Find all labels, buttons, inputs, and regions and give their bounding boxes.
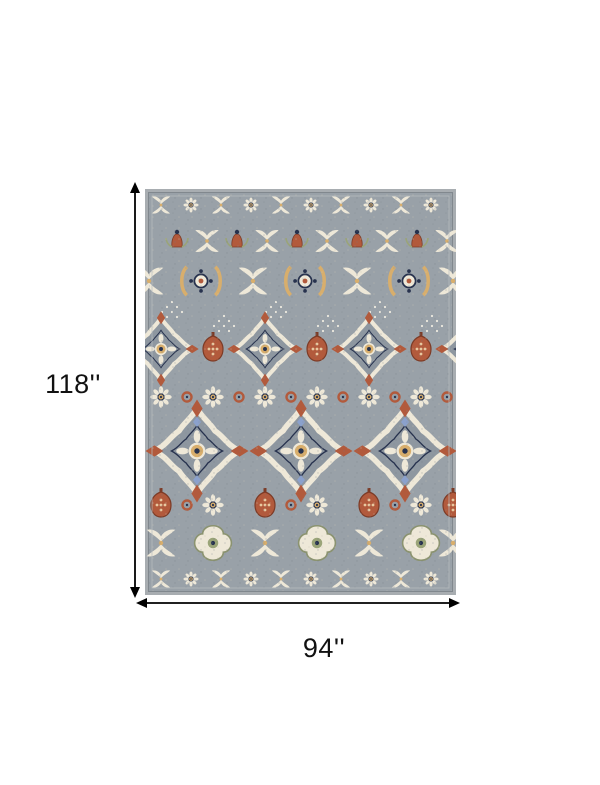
height-dimension-arrow — [126, 182, 144, 598]
rug-image — [145, 189, 456, 595]
height-dimension-label: 118'' — [26, 370, 120, 400]
width-dimension-label: 94'' — [272, 634, 376, 664]
rug-pattern-graphic — [145, 189, 456, 595]
product-dimension-diagram: 118'' 94'' — [0, 0, 600, 785]
width-dimension-arrow — [135, 594, 461, 612]
